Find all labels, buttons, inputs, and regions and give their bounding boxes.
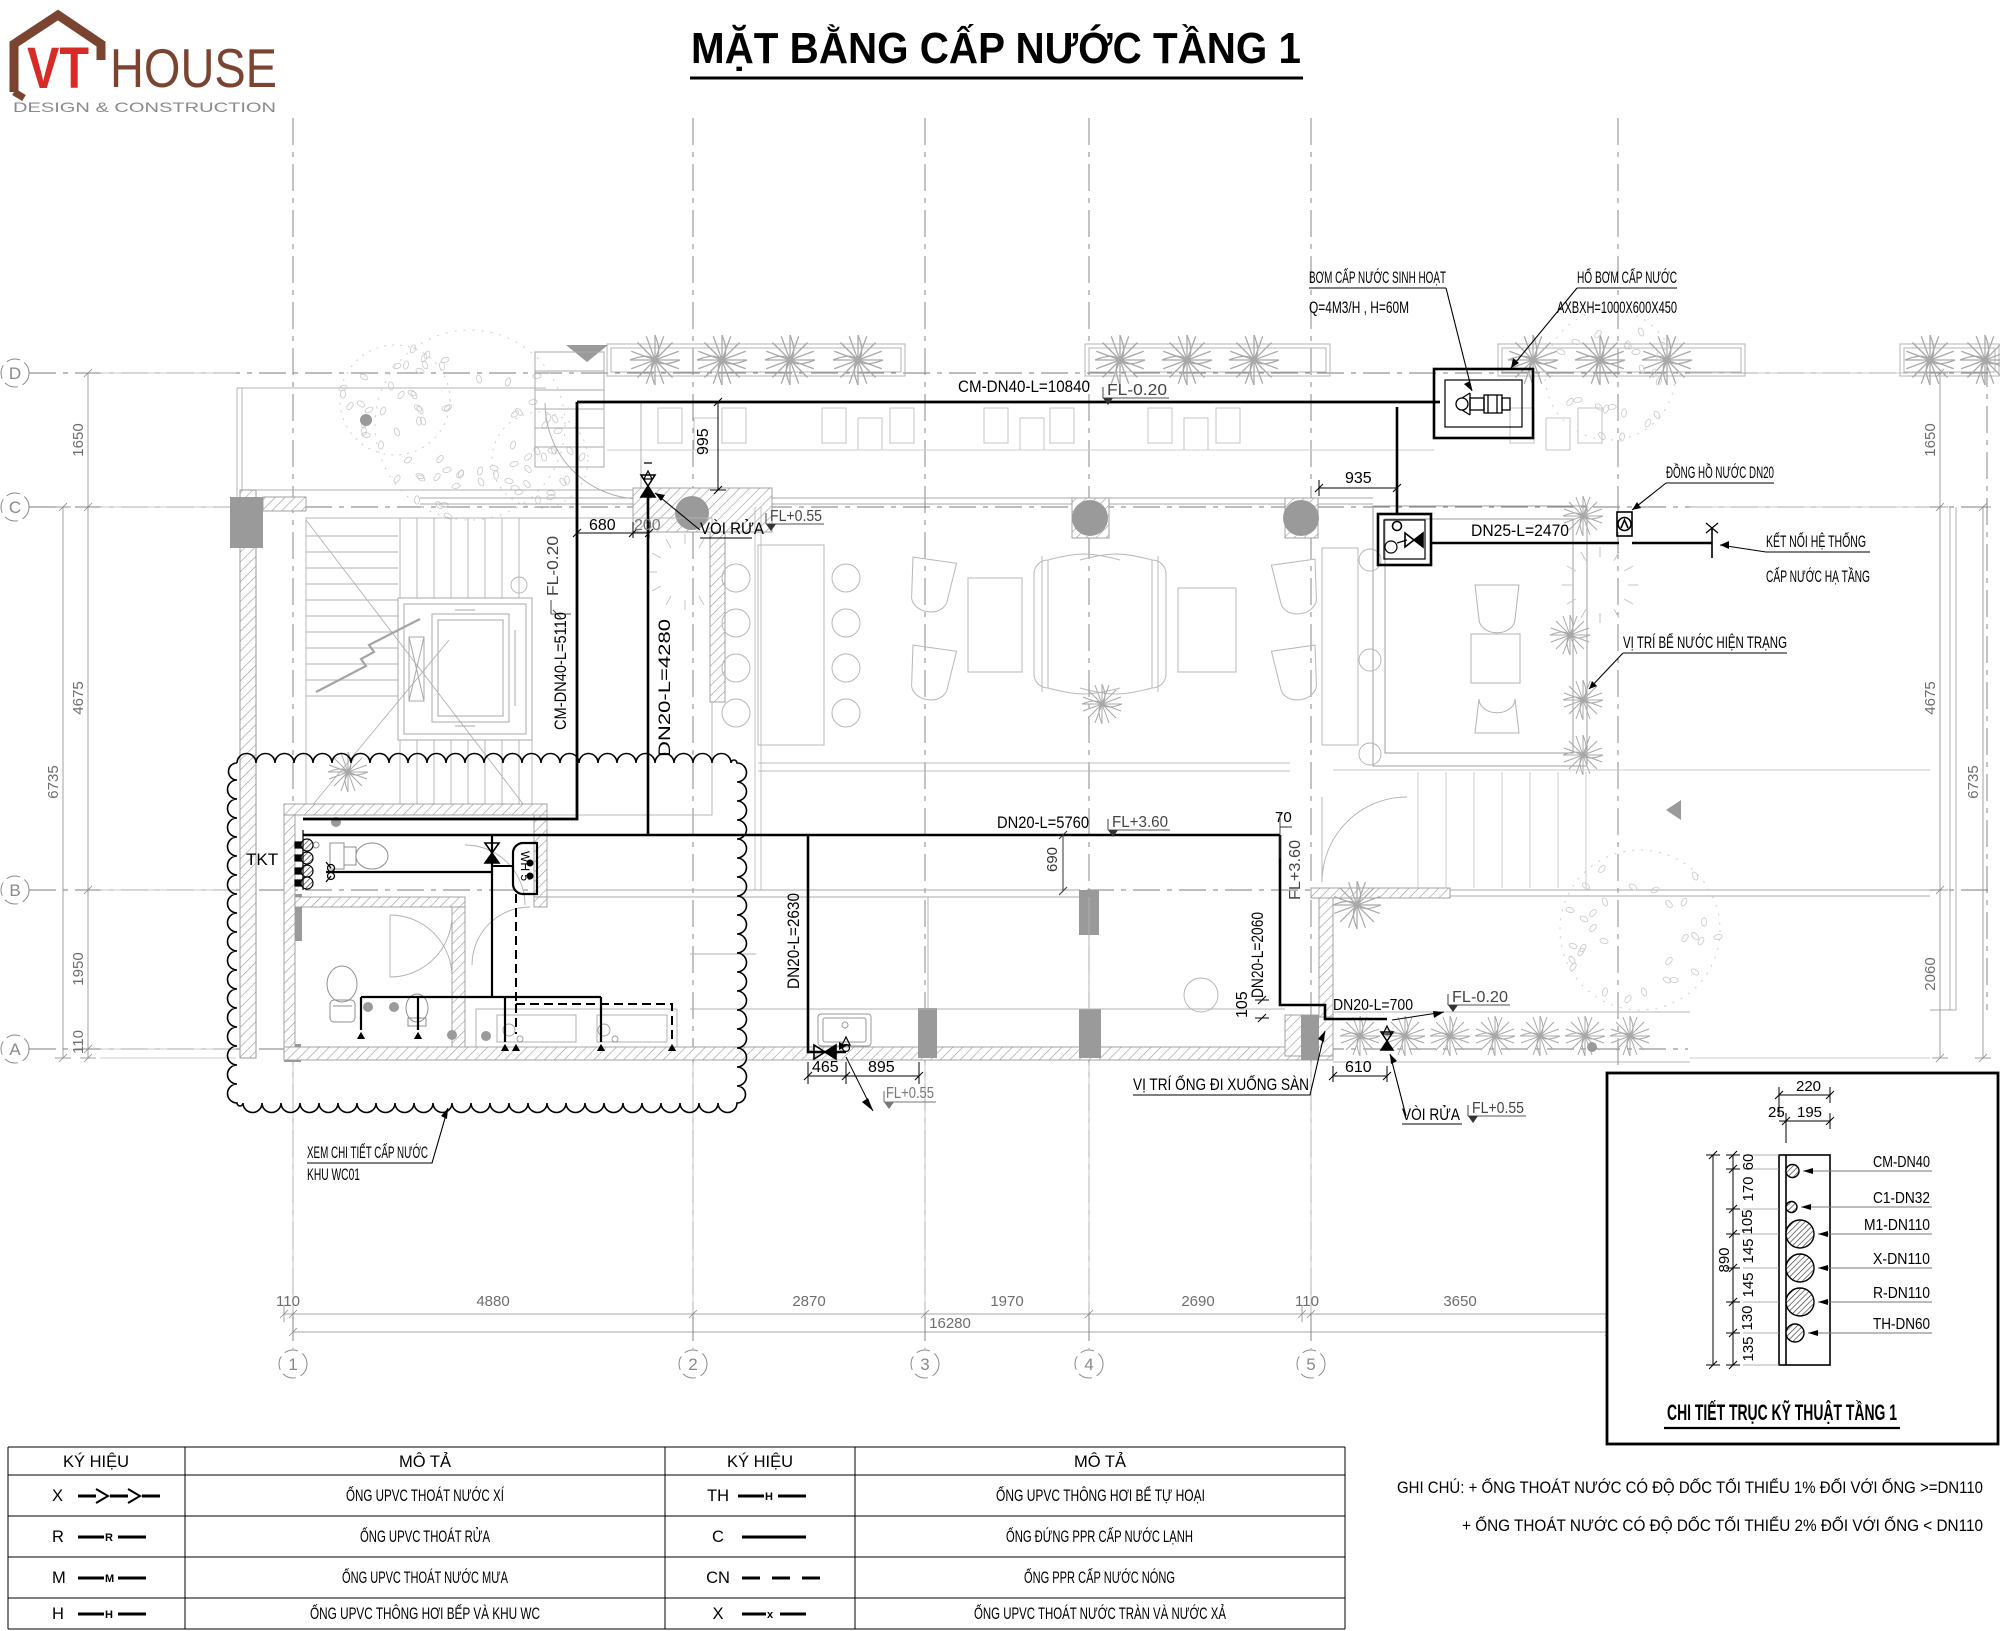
svg-text:M: M	[105, 1573, 114, 1585]
svg-text:110: 110	[1295, 1293, 1319, 1310]
svg-text:XEM CHI TIẾT CẤP NƯỚC: XEM CHI TIẾT CẤP NƯỚC	[307, 1143, 428, 1162]
svg-text:4675: 4675	[1922, 681, 1939, 714]
svg-text:HỐ BƠM CẤP NƯỚC: HỐ BƠM CẤP NƯỚC	[1577, 267, 1677, 287]
svg-text:1950: 1950	[70, 952, 87, 985]
svg-text:3650: 3650	[1443, 1293, 1476, 1310]
svg-text:105: 105	[1739, 1209, 1756, 1234]
svg-text:DN20-L=4280: DN20-L=4280	[655, 619, 674, 757]
svg-text:2870: 2870	[792, 1293, 825, 1310]
svg-text:25: 25	[1768, 1104, 1785, 1121]
svg-text:TH-DN60: TH-DN60	[1873, 1316, 1930, 1333]
svg-text:KẾT NỐI HỆ THỐNG: KẾT NỐI HỆ THỐNG	[1766, 531, 1866, 551]
svg-text:ỐNG UPVC THOÁT NƯỚC MƯA: ỐNG UPVC THOÁT NƯỚC MƯA	[342, 1567, 508, 1587]
svg-text:R: R	[52, 1528, 64, 1546]
svg-text:ỐNG UPVC THOÁT NƯỚC TRÀN VÀ NƯ: ỐNG UPVC THOÁT NƯỚC TRÀN VÀ NƯỚC XẢ	[974, 1603, 1226, 1623]
svg-text:690: 690	[1044, 847, 1061, 872]
svg-text:DESIGN & CONSTRUCTION: DESIGN & CONSTRUCTION	[13, 99, 276, 115]
svg-text:ỐNG ĐỨNG PPR CẤP NƯỚC LẠNH: ỐNG ĐỨNG PPR CẤP NƯỚC LẠNH	[1006, 1526, 1193, 1546]
svg-text:Q=4M3/H , H=60M: Q=4M3/H , H=60M	[1309, 298, 1409, 317]
svg-text:16280: 16280	[929, 1315, 971, 1332]
svg-text:CM-DN40: CM-DN40	[1873, 1154, 1930, 1171]
svg-text:ỐNG UPVC THOÁT NƯỚC XÍ: ỐNG UPVC THOÁT NƯỚC XÍ	[346, 1485, 504, 1505]
svg-text:DN25-L=2470: DN25-L=2470	[1471, 521, 1569, 540]
svg-text:C: C	[712, 1528, 724, 1546]
svg-text:5: 5	[1306, 1355, 1315, 1374]
svg-text:FL-0.20: FL-0.20	[1452, 989, 1508, 1006]
svg-text:FL+3.60: FL+3.60	[1287, 840, 1304, 900]
svg-text:FL+0.55: FL+0.55	[770, 508, 822, 525]
svg-text:ỐNG PPR CẤP NƯỚC NÓNG: ỐNG PPR CẤP NƯỚC NÓNG	[1024, 1567, 1175, 1587]
svg-text:KÝ HIỆU: KÝ HIỆU	[63, 1452, 129, 1471]
svg-text:FL-0.20: FL-0.20	[1107, 382, 1167, 399]
svg-text:60: 60	[1740, 1154, 1757, 1171]
svg-text:HOUSE: HOUSE	[110, 37, 277, 99]
svg-text:BƠM CẤP NƯỚC SINH HOẠT: BƠM CẤP NƯỚC SINH HOẠT	[1309, 268, 1446, 287]
svg-text:M: M	[52, 1569, 66, 1587]
svg-text:890: 890	[1716, 1247, 1733, 1272]
svg-text:R: R	[105, 1532, 113, 1544]
svg-text:VỊ TRÍ BỂ NƯỚC HIỆN TRẠNG: VỊ TRÍ BỂ NƯỚC HIỆN TRẠNG	[1623, 633, 1787, 652]
svg-text:4880: 4880	[476, 1293, 509, 1310]
svg-text:GHI CHÚ: + ỐNG THOÁT NƯỚC CÓ: GHI CHÚ: + ỐNG THOÁT NƯỚC CÓ ĐỘ DỐC TỐI …	[1397, 1477, 1983, 1497]
svg-text:4: 4	[1084, 1355, 1093, 1374]
svg-text:DN20-L=5760: DN20-L=5760	[997, 813, 1089, 832]
svg-text:X-DN110: X-DN110	[1873, 1251, 1930, 1268]
svg-text:C: C	[9, 498, 21, 517]
svg-text:2060: 2060	[1922, 957, 1939, 990]
svg-text:CM-DN40-L=5110: CM-DN40-L=5110	[551, 612, 570, 730]
svg-text:130: 130	[1739, 1305, 1756, 1330]
svg-text:935: 935	[1345, 470, 1372, 487]
svg-text:1650: 1650	[1922, 423, 1939, 456]
svg-text:DN20-L=2060: DN20-L=2060	[1248, 912, 1267, 998]
svg-text:ỐNG UPVC THOÁT RỬA: ỐNG UPVC THOÁT RỬA	[360, 1526, 490, 1546]
svg-text:CHI TIẾT TRỤC KỸ THUẬT TẦNG 1: CHI TIẾT TRỤC KỸ THUẬT TẦNG 1	[1667, 1400, 1897, 1425]
svg-text:DN20-L=2630: DN20-L=2630	[784, 893, 803, 989]
svg-text:ỐNG UPVC THÔNG HƠI BỂ TỰ HOẠI: ỐNG UPVC THÔNG HƠI BỂ TỰ HOẠI	[996, 1485, 1205, 1505]
svg-text:CẤP NƯỚC HẠ TẦNG: CẤP NƯỚC HẠ TẦNG	[1766, 567, 1870, 586]
svg-text:x: x	[767, 1609, 774, 1621]
svg-text:465: 465	[812, 1059, 839, 1076]
svg-text:VT: VT	[27, 36, 89, 101]
svg-text:MÔ TẢ: MÔ TẢ	[1074, 1452, 1127, 1471]
svg-text:200: 200	[634, 517, 661, 534]
svg-text:H: H	[765, 1491, 773, 1503]
svg-text:170: 170	[1740, 1176, 1757, 1201]
svg-text:B: B	[9, 881, 20, 900]
svg-text:110: 110	[70, 1030, 87, 1054]
svg-text:KHU WC01: KHU WC01	[307, 1165, 360, 1184]
svg-text:WH 5: WH 5	[518, 851, 532, 881]
svg-text:D: D	[9, 364, 21, 383]
svg-text:2690: 2690	[1181, 1293, 1214, 1310]
svg-text:FL+0.55: FL+0.55	[886, 1085, 934, 1102]
svg-text:VÒI RỬA: VÒI RỬA	[700, 519, 765, 538]
svg-text:195: 195	[1797, 1104, 1822, 1121]
svg-text:105: 105	[1234, 991, 1251, 1018]
svg-text:MẶT BẰNG CẤP NƯỚC TẦNG 1: MẶT BẰNG CẤP NƯỚC TẦNG 1	[691, 23, 1301, 73]
svg-text:C1-DN32: C1-DN32	[1873, 1190, 1930, 1207]
svg-text:X: X	[712, 1605, 723, 1623]
svg-text:CM-DN40-L=10840: CM-DN40-L=10840	[958, 377, 1090, 396]
svg-text:M1-DN110: M1-DN110	[1864, 1217, 1930, 1234]
svg-text:680: 680	[589, 517, 616, 534]
svg-text:AXBXH=1000X600X450: AXBXH=1000X600X450	[1557, 298, 1677, 317]
svg-text:610: 610	[1345, 1059, 1372, 1076]
svg-text:FL-0.20: FL-0.20	[545, 536, 562, 596]
svg-text:2: 2	[688, 1355, 697, 1374]
svg-text:X: X	[52, 1487, 63, 1505]
svg-text:4675: 4675	[70, 681, 87, 714]
svg-text:145: 145	[1740, 1238, 1757, 1263]
svg-text:1650: 1650	[70, 423, 87, 456]
svg-text:TKT: TKT	[246, 850, 278, 869]
svg-text:1: 1	[288, 1355, 297, 1374]
svg-text:R-DN110: R-DN110	[1873, 1285, 1930, 1302]
svg-text:A: A	[9, 1040, 21, 1059]
svg-text:135: 135	[1740, 1336, 1757, 1361]
svg-text:895: 895	[868, 1059, 895, 1076]
svg-text:MÔ TẢ: MÔ TẢ	[399, 1452, 452, 1471]
svg-text:110: 110	[276, 1293, 300, 1310]
svg-text:VÒI RỬA: VÒI RỬA	[1402, 1105, 1461, 1124]
svg-text:220: 220	[1796, 1078, 1821, 1095]
svg-text:3: 3	[920, 1355, 929, 1374]
svg-text:70: 70	[1275, 809, 1292, 826]
svg-text:6735: 6735	[1965, 765, 1982, 798]
svg-text:VỊ TRÍ ỐNG ĐI XUỐNG SÀN: VỊ TRÍ ỐNG ĐI XUỐNG SÀN	[1133, 1074, 1309, 1094]
svg-text:H: H	[105, 1609, 113, 1621]
svg-text:995: 995	[695, 428, 712, 455]
svg-text:6735: 6735	[45, 765, 62, 798]
svg-text:CN: CN	[706, 1569, 730, 1587]
svg-text:DN20-L=700: DN20-L=700	[1333, 997, 1413, 1014]
svg-text:H: H	[52, 1605, 64, 1623]
svg-text:TH: TH	[707, 1487, 729, 1505]
svg-text:FL+3.60: FL+3.60	[1112, 814, 1168, 831]
svg-text:+ ỐNG THOÁT NƯỚC CÓ ĐỘ DỐC TỐ: + ỐNG THOÁT NƯỚC CÓ ĐỘ DỐC TỐI THIỂU 2% …	[1462, 1515, 1983, 1535]
svg-text:KÝ HIỆU: KÝ HIỆU	[727, 1452, 793, 1471]
svg-text:ĐỒNG HỒ NƯỚC DN20: ĐỒNG HỒ NƯỚC DN20	[1666, 463, 1774, 482]
svg-text:ỐNG UPVC THÔNG HƠI BẾP VÀ KHU: ỐNG UPVC THÔNG HƠI BẾP VÀ KHU WC	[310, 1603, 540, 1623]
svg-text:1970: 1970	[990, 1293, 1023, 1310]
svg-text:FL+0.55: FL+0.55	[1472, 1100, 1524, 1117]
svg-text:145: 145	[1740, 1272, 1757, 1297]
